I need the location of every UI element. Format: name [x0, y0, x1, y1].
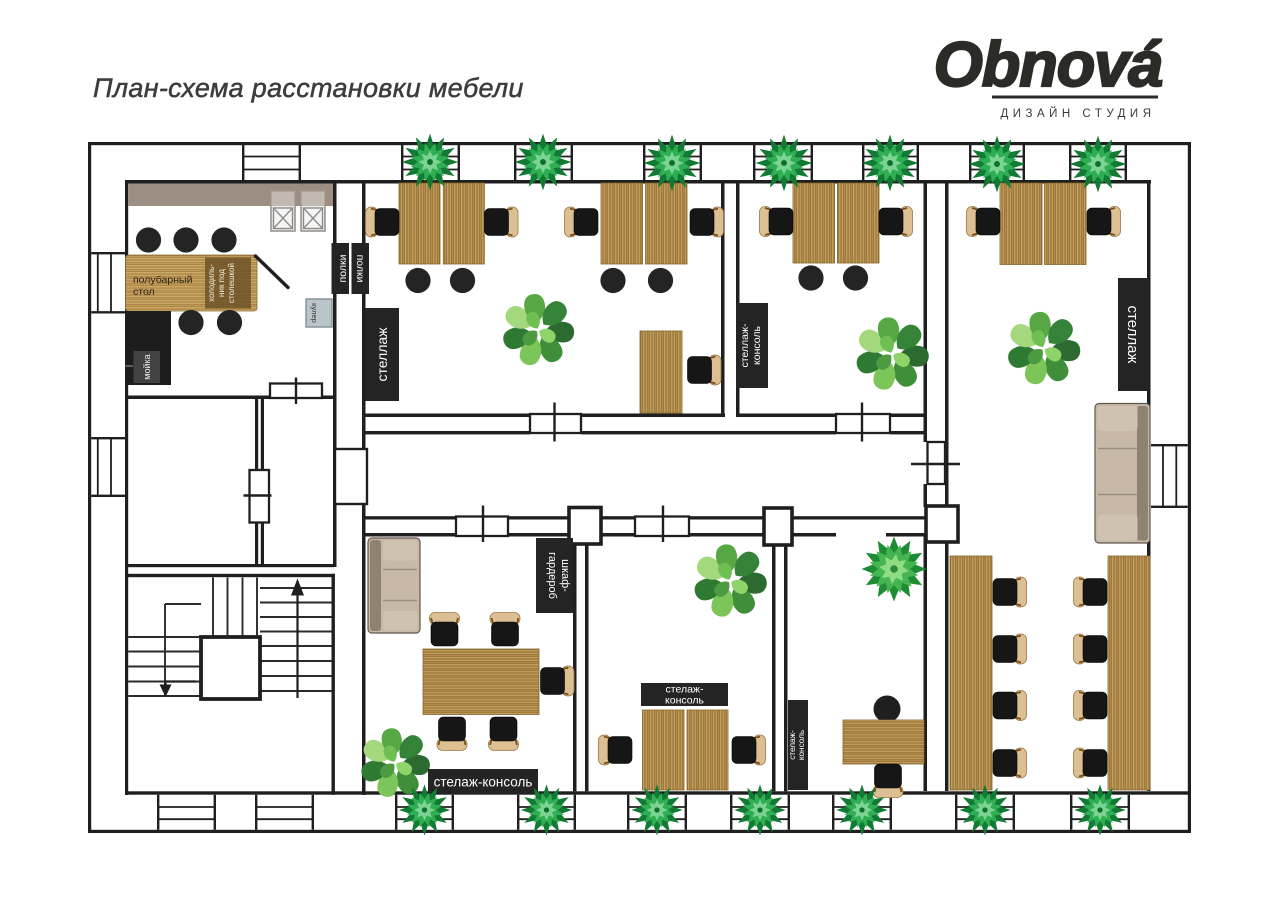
svg-text:полубарный: полубарный [133, 274, 193, 286]
svg-text:стелаж-: стелаж- [788, 730, 797, 760]
svg-text:мойка: мойка [142, 354, 152, 379]
svg-text:стеллаж-: стеллаж- [739, 323, 751, 368]
svg-text:консоль: консоль [797, 730, 806, 760]
svg-text:полки: полки [337, 254, 349, 282]
svg-text:гардероб: гардероб [546, 552, 558, 599]
svg-text:ник под: ник под [217, 269, 226, 297]
svg-text:столешкой: столешкой [227, 263, 236, 303]
svg-text:консоль: консоль [665, 695, 704, 707]
svg-text:консоль: консоль [751, 326, 763, 365]
svg-text:стеллаж: стеллаж [374, 327, 390, 382]
svg-text:стелаж-консоль: стелаж-консоль [434, 775, 533, 790]
svg-text:План-схема расстановки мебели: План-схема расстановки мебели [93, 73, 524, 103]
svg-text:ДИЗАЙН СТУДИЯ: ДИЗАЙН СТУДИЯ [1000, 107, 1155, 120]
svg-text:шкаф-: шкаф- [559, 559, 571, 592]
svg-text:стол: стол [133, 286, 155, 298]
svg-text:стеллаж: стеллаж [1124, 306, 1141, 364]
svg-text:полки: полки [354, 255, 366, 283]
svg-text:кулер: кулер [310, 303, 319, 323]
svg-text:холодиль-: холодиль- [207, 264, 216, 302]
svg-text:Obnová: Obnová [934, 30, 1163, 100]
